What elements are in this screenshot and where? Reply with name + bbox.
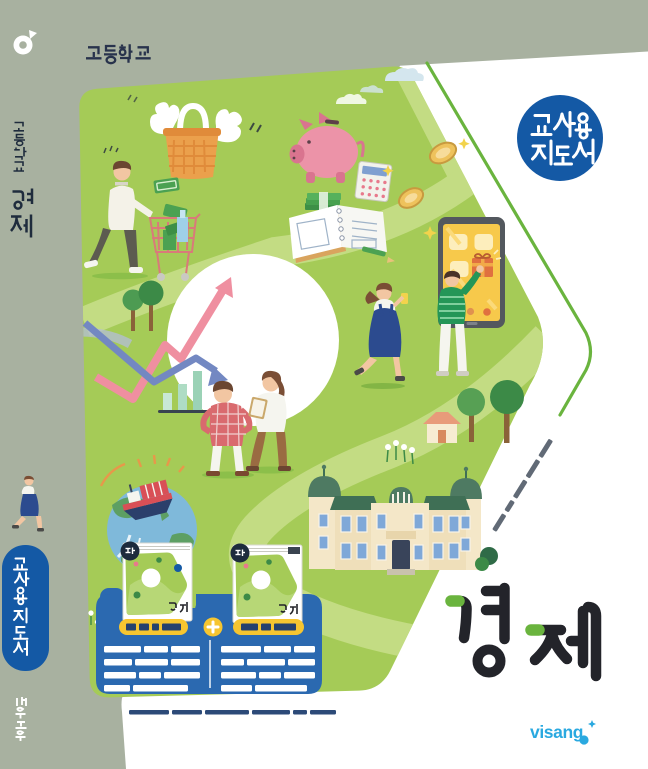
svg-text:visang: visang bbox=[530, 722, 583, 742]
